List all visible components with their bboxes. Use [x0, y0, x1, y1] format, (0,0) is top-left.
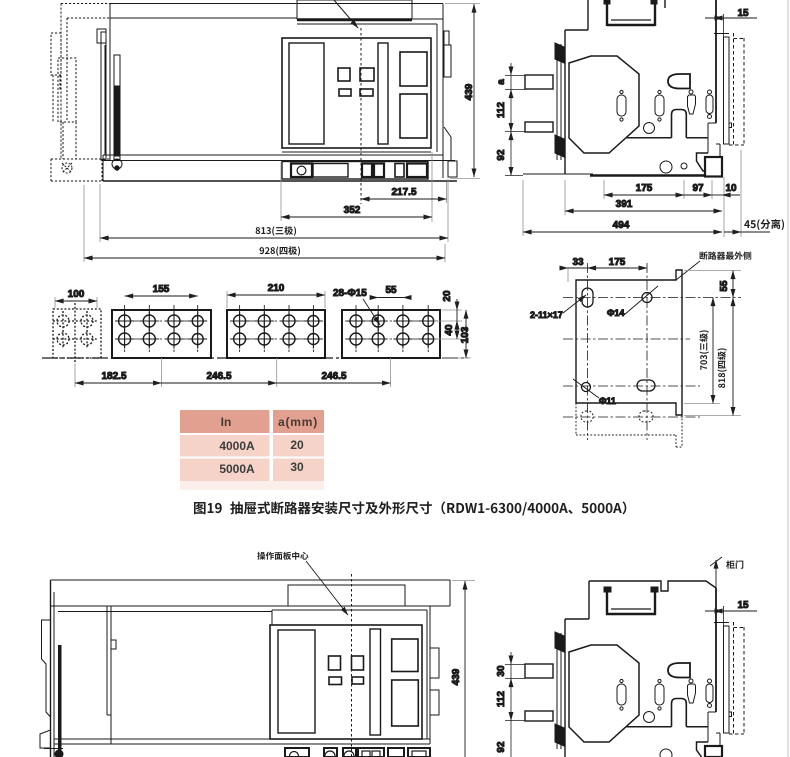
svg-text:175: 175 — [636, 183, 653, 194]
svg-text:20: 20 — [442, 290, 453, 302]
svg-text:182.5: 182.5 — [101, 371, 126, 382]
svg-text:439: 439 — [451, 668, 462, 685]
svg-text:391: 391 — [616, 199, 633, 210]
svg-text:20: 20 — [290, 438, 304, 452]
svg-text:92: 92 — [496, 149, 507, 161]
svg-text:Φ11: Φ11 — [599, 396, 616, 406]
svg-text:246.5: 246.5 — [206, 371, 231, 382]
svg-text:97: 97 — [692, 183, 704, 194]
svg-text:15: 15 — [737, 8, 749, 19]
svg-text:33: 33 — [572, 257, 584, 268]
svg-text:112: 112 — [496, 690, 507, 707]
svg-text:175: 175 — [609, 257, 626, 268]
svg-text:Φ14: Φ14 — [607, 308, 624, 318]
svg-text:210: 210 — [268, 283, 285, 294]
svg-text:352: 352 — [344, 205, 361, 216]
svg-text:55: 55 — [385, 285, 397, 296]
svg-text:40: 40 — [444, 324, 455, 336]
svg-text:10: 10 — [725, 183, 737, 194]
svg-text:5000A: 5000A — [219, 462, 255, 476]
svg-text:217.5: 217.5 — [391, 187, 416, 198]
svg-text:112: 112 — [496, 101, 507, 118]
svg-text:103: 103 — [460, 326, 471, 343]
svg-text:4000A: 4000A — [219, 439, 255, 453]
svg-text:a: a — [496, 79, 507, 85]
svg-text:30: 30 — [496, 665, 507, 677]
svg-text:246.5: 246.5 — [321, 371, 346, 382]
svg-text:155: 155 — [153, 284, 170, 295]
svg-text:55: 55 — [719, 280, 730, 292]
svg-text:a(mm): a(mm) — [278, 415, 318, 429]
svg-text:28-Φ15: 28-Φ15 — [333, 288, 367, 299]
svg-text:100: 100 — [68, 289, 85, 300]
svg-text:In: In — [221, 415, 232, 429]
svg-text:15: 15 — [737, 600, 749, 611]
svg-text:439: 439 — [464, 83, 475, 100]
svg-text:92: 92 — [496, 741, 507, 753]
svg-text:494: 494 — [613, 220, 630, 231]
svg-text:30: 30 — [290, 460, 304, 474]
svg-text:2-11×17: 2-11×17 — [530, 310, 563, 320]
